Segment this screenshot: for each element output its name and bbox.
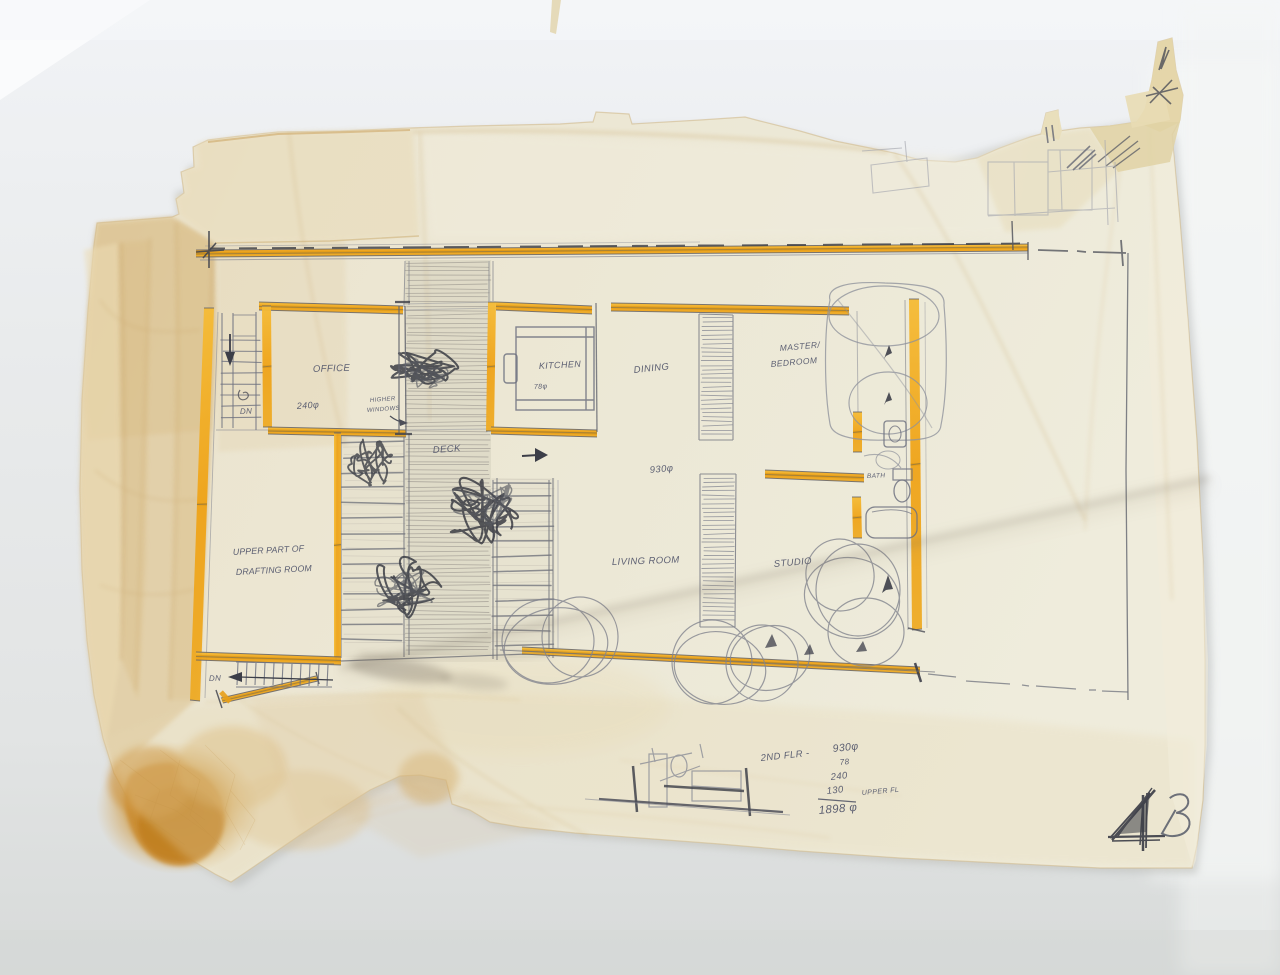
svg-text:240φ: 240φ	[295, 399, 319, 411]
svg-text:DN: DN	[209, 674, 222, 683]
svg-text:930φ: 930φ	[649, 463, 674, 476]
svg-text:BATH: BATH	[867, 472, 886, 480]
svg-text:78φ: 78φ	[534, 383, 548, 391]
svg-text:DECK: DECK	[432, 443, 461, 456]
svg-text:OFFICE: OFFICE	[313, 363, 351, 375]
svg-text:DN: DN	[240, 407, 253, 416]
svg-text:240: 240	[829, 770, 848, 783]
svg-text:78: 78	[839, 757, 850, 767]
svg-text:130: 130	[826, 784, 844, 797]
